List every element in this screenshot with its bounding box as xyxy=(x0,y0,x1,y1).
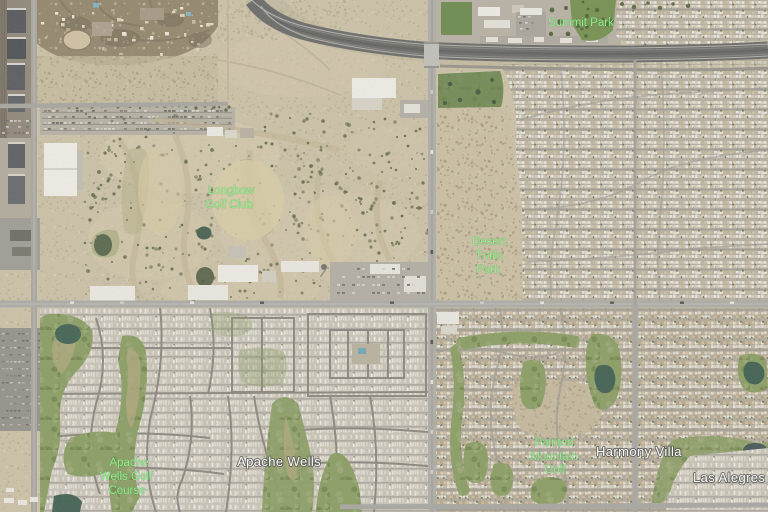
svg-text:Apache: Apache xyxy=(109,457,148,469)
svg-text:Golf Club: Golf Club xyxy=(205,199,253,211)
svg-text:Painted: Painted xyxy=(534,437,573,449)
svg-text:Course: Course xyxy=(108,485,145,497)
svg-text:Trails: Trails xyxy=(475,250,503,262)
svg-text:Park: Park xyxy=(476,264,500,276)
svg-text:Las Alegres: Las Alegres xyxy=(693,470,765,485)
svg-text:Golf: Golf xyxy=(544,464,566,476)
svg-text:Desert: Desert xyxy=(472,236,507,248)
svg-text:Longbow: Longbow xyxy=(208,185,255,197)
svg-text:Summit Park: Summit Park xyxy=(548,17,614,29)
svg-text:Harmony Villa: Harmony Villa xyxy=(596,444,682,459)
svg-text:Apache Wells: Apache Wells xyxy=(237,454,321,469)
svg-text:Mountain: Mountain xyxy=(530,451,577,463)
svg-text:Wells Golf: Wells Golf xyxy=(100,471,153,483)
